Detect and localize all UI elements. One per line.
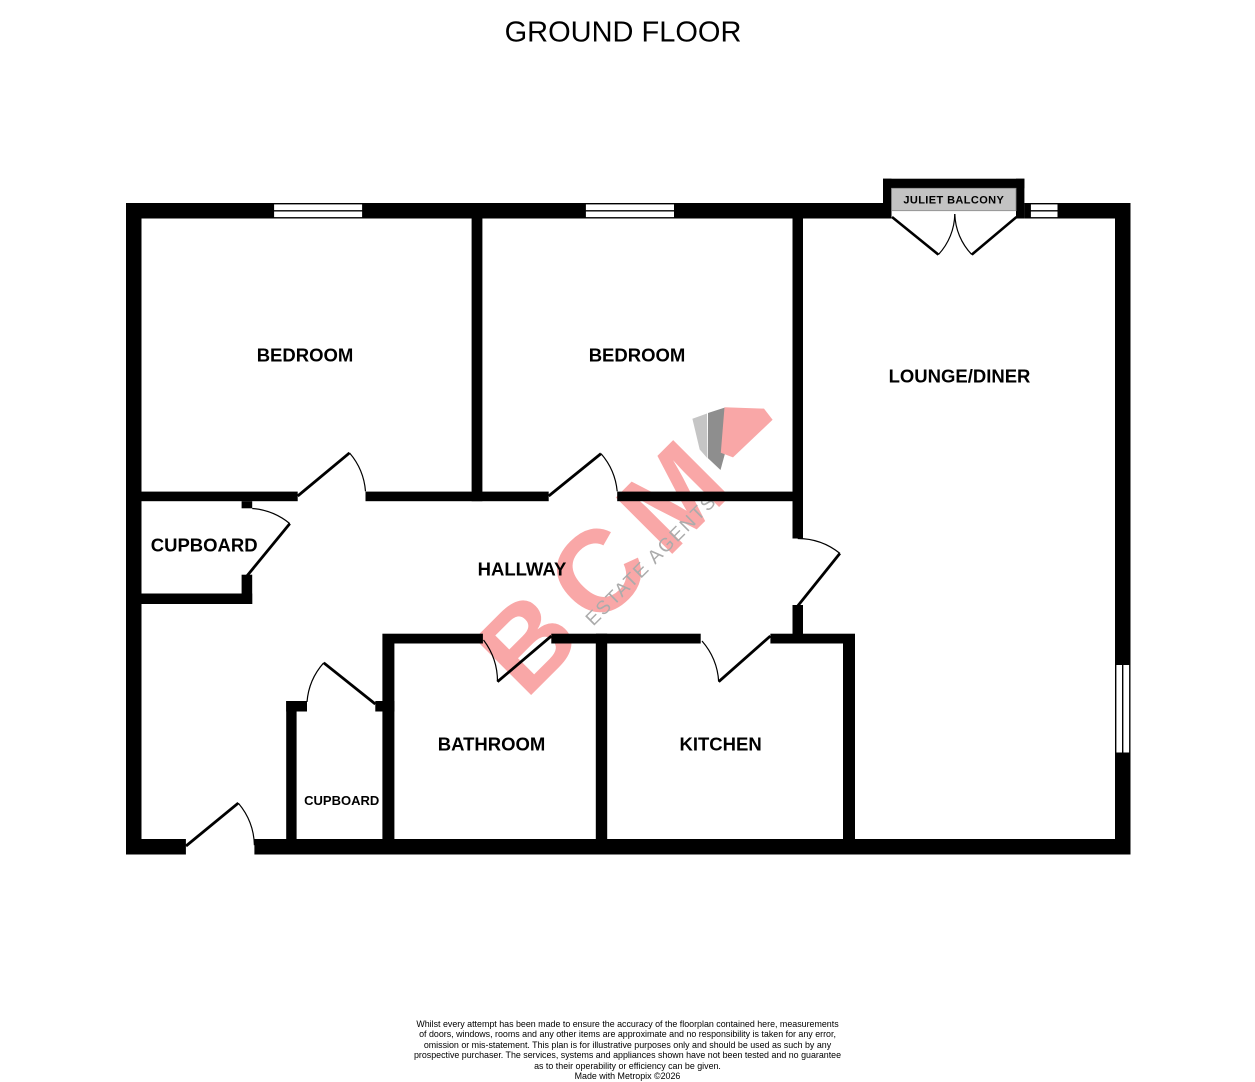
svg-text:JULIET BALCONY: JULIET BALCONY [903,195,1004,207]
svg-text:KITCHEN: KITCHEN [679,734,761,755]
svg-text:GROUND FLOOR: GROUND FLOOR [505,17,742,49]
svg-text:BATHROOM: BATHROOM [438,734,546,755]
svg-text:CUPBOARD: CUPBOARD [151,534,258,555]
svg-text:LOUNGE/DINER: LOUNGE/DINER [889,365,1031,386]
svg-text:CUPBOARD: CUPBOARD [304,793,379,808]
svg-text:HALLWAY: HALLWAY [478,559,567,580]
svg-text:BEDROOM: BEDROOM [257,344,354,365]
svg-text:BEDROOM: BEDROOM [589,344,686,365]
